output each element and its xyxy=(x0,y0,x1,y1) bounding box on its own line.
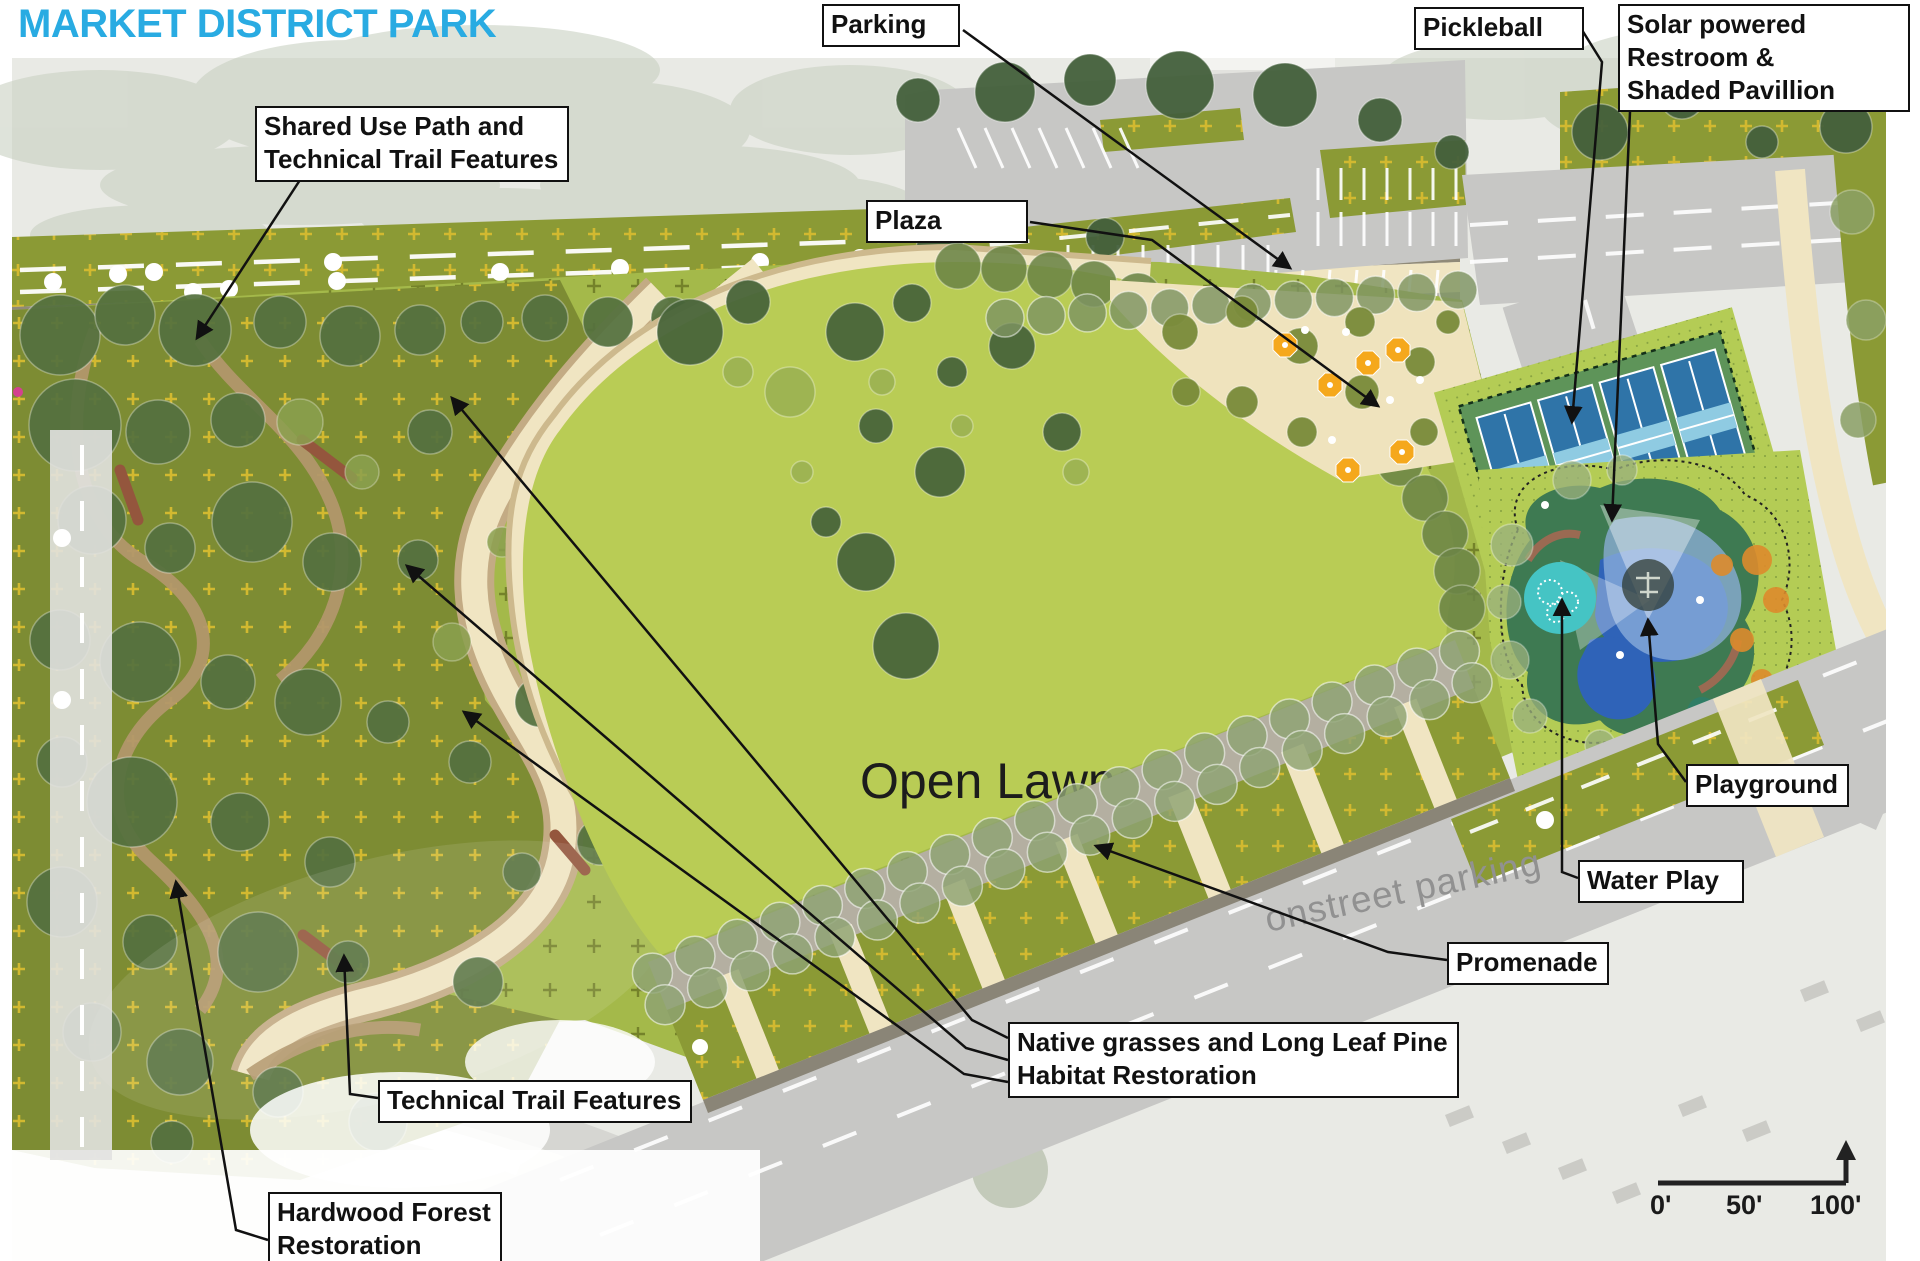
callout-promenade: Promenade xyxy=(1447,942,1609,985)
callout-solar-restroom: Solar powered Restroom & Shaded Pavillio… xyxy=(1618,4,1910,112)
callout-shared-use-path: Shared Use Path and Technical Trail Feat… xyxy=(255,106,569,182)
callout-hardwood-forest: Hardwood Forest Restoration xyxy=(268,1192,502,1261)
callout-plaza: Plaza xyxy=(866,200,1028,243)
right-margin xyxy=(1886,58,1920,1261)
page-title: MARKET DISTRICT PARK xyxy=(18,2,496,47)
callout-parking: Parking xyxy=(822,4,960,47)
scale-0: 0' xyxy=(1650,1190,1671,1220)
site-plan-map: Open Lawn xyxy=(0,0,1920,1261)
callout-water-play: Water Play xyxy=(1578,860,1744,903)
survey-point xyxy=(13,387,23,397)
callout-pickleball: Pickleball xyxy=(1414,7,1584,50)
callout-technical-trail: Technical Trail Features xyxy=(378,1080,692,1123)
park-master-plan: Open Lawn xyxy=(0,0,1920,1261)
scale-100: 100' xyxy=(1810,1190,1861,1220)
scale-50: 50' xyxy=(1726,1190,1762,1220)
callout-native-grasses: Native grasses and Long Leaf Pine Habita… xyxy=(1008,1022,1459,1098)
callout-playground: Playground xyxy=(1686,764,1849,807)
